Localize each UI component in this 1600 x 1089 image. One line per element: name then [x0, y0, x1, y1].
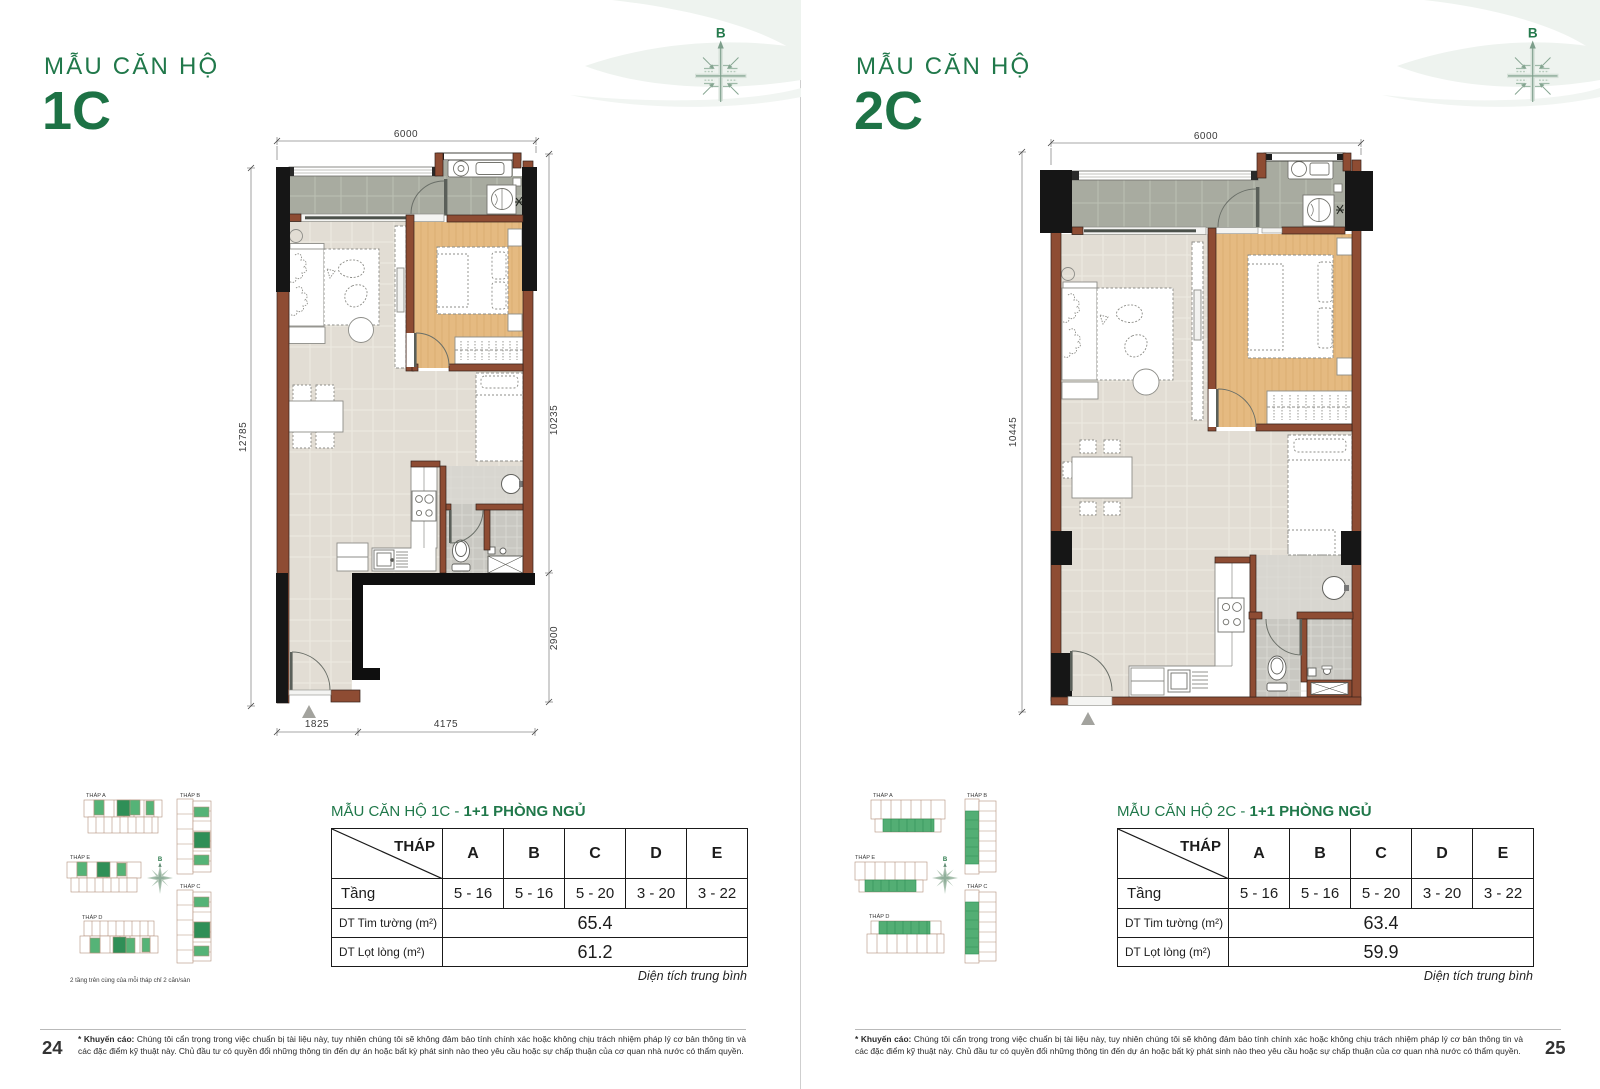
svg-text:B: B	[158, 857, 163, 863]
svg-text:B: B	[943, 857, 948, 863]
svg-text:2 tầng trên cùng của mỗi tháp: 2 tầng trên cùng của mỗi tháp chỉ 2 căn/…	[70, 977, 191, 984]
svg-text:6000: 6000	[394, 129, 418, 140]
svg-text:THÁP B: THÁP B	[180, 792, 200, 799]
svg-text:THÁP A: THÁP A	[86, 792, 106, 799]
svg-text:4175: 4175	[434, 719, 458, 730]
svg-text:THÁP C: THÁP C	[967, 883, 987, 890]
svg-text:THÁP B: THÁP B	[967, 792, 987, 799]
svg-text:THÁP A: THÁP A	[873, 792, 893, 799]
svg-text:1825: 1825	[305, 719, 329, 730]
svg-text:B: B	[1528, 26, 1538, 41]
svg-text:10445: 10445	[1008, 417, 1019, 447]
svg-text:THÁP E: THÁP E	[70, 854, 90, 861]
svg-text:6000: 6000	[1194, 131, 1218, 142]
svg-text:THÁP E: THÁP E	[855, 854, 875, 861]
svg-text:B: B	[716, 26, 726, 41]
svg-text:THÁP C: THÁP C	[180, 883, 200, 890]
svg-text:THÁP D: THÁP D	[82, 914, 102, 921]
svg-text:10235: 10235	[549, 405, 560, 435]
svg-text:THÁP D: THÁP D	[869, 913, 889, 920]
svg-text:2900: 2900	[549, 626, 560, 650]
svg-text:12785: 12785	[238, 422, 249, 452]
